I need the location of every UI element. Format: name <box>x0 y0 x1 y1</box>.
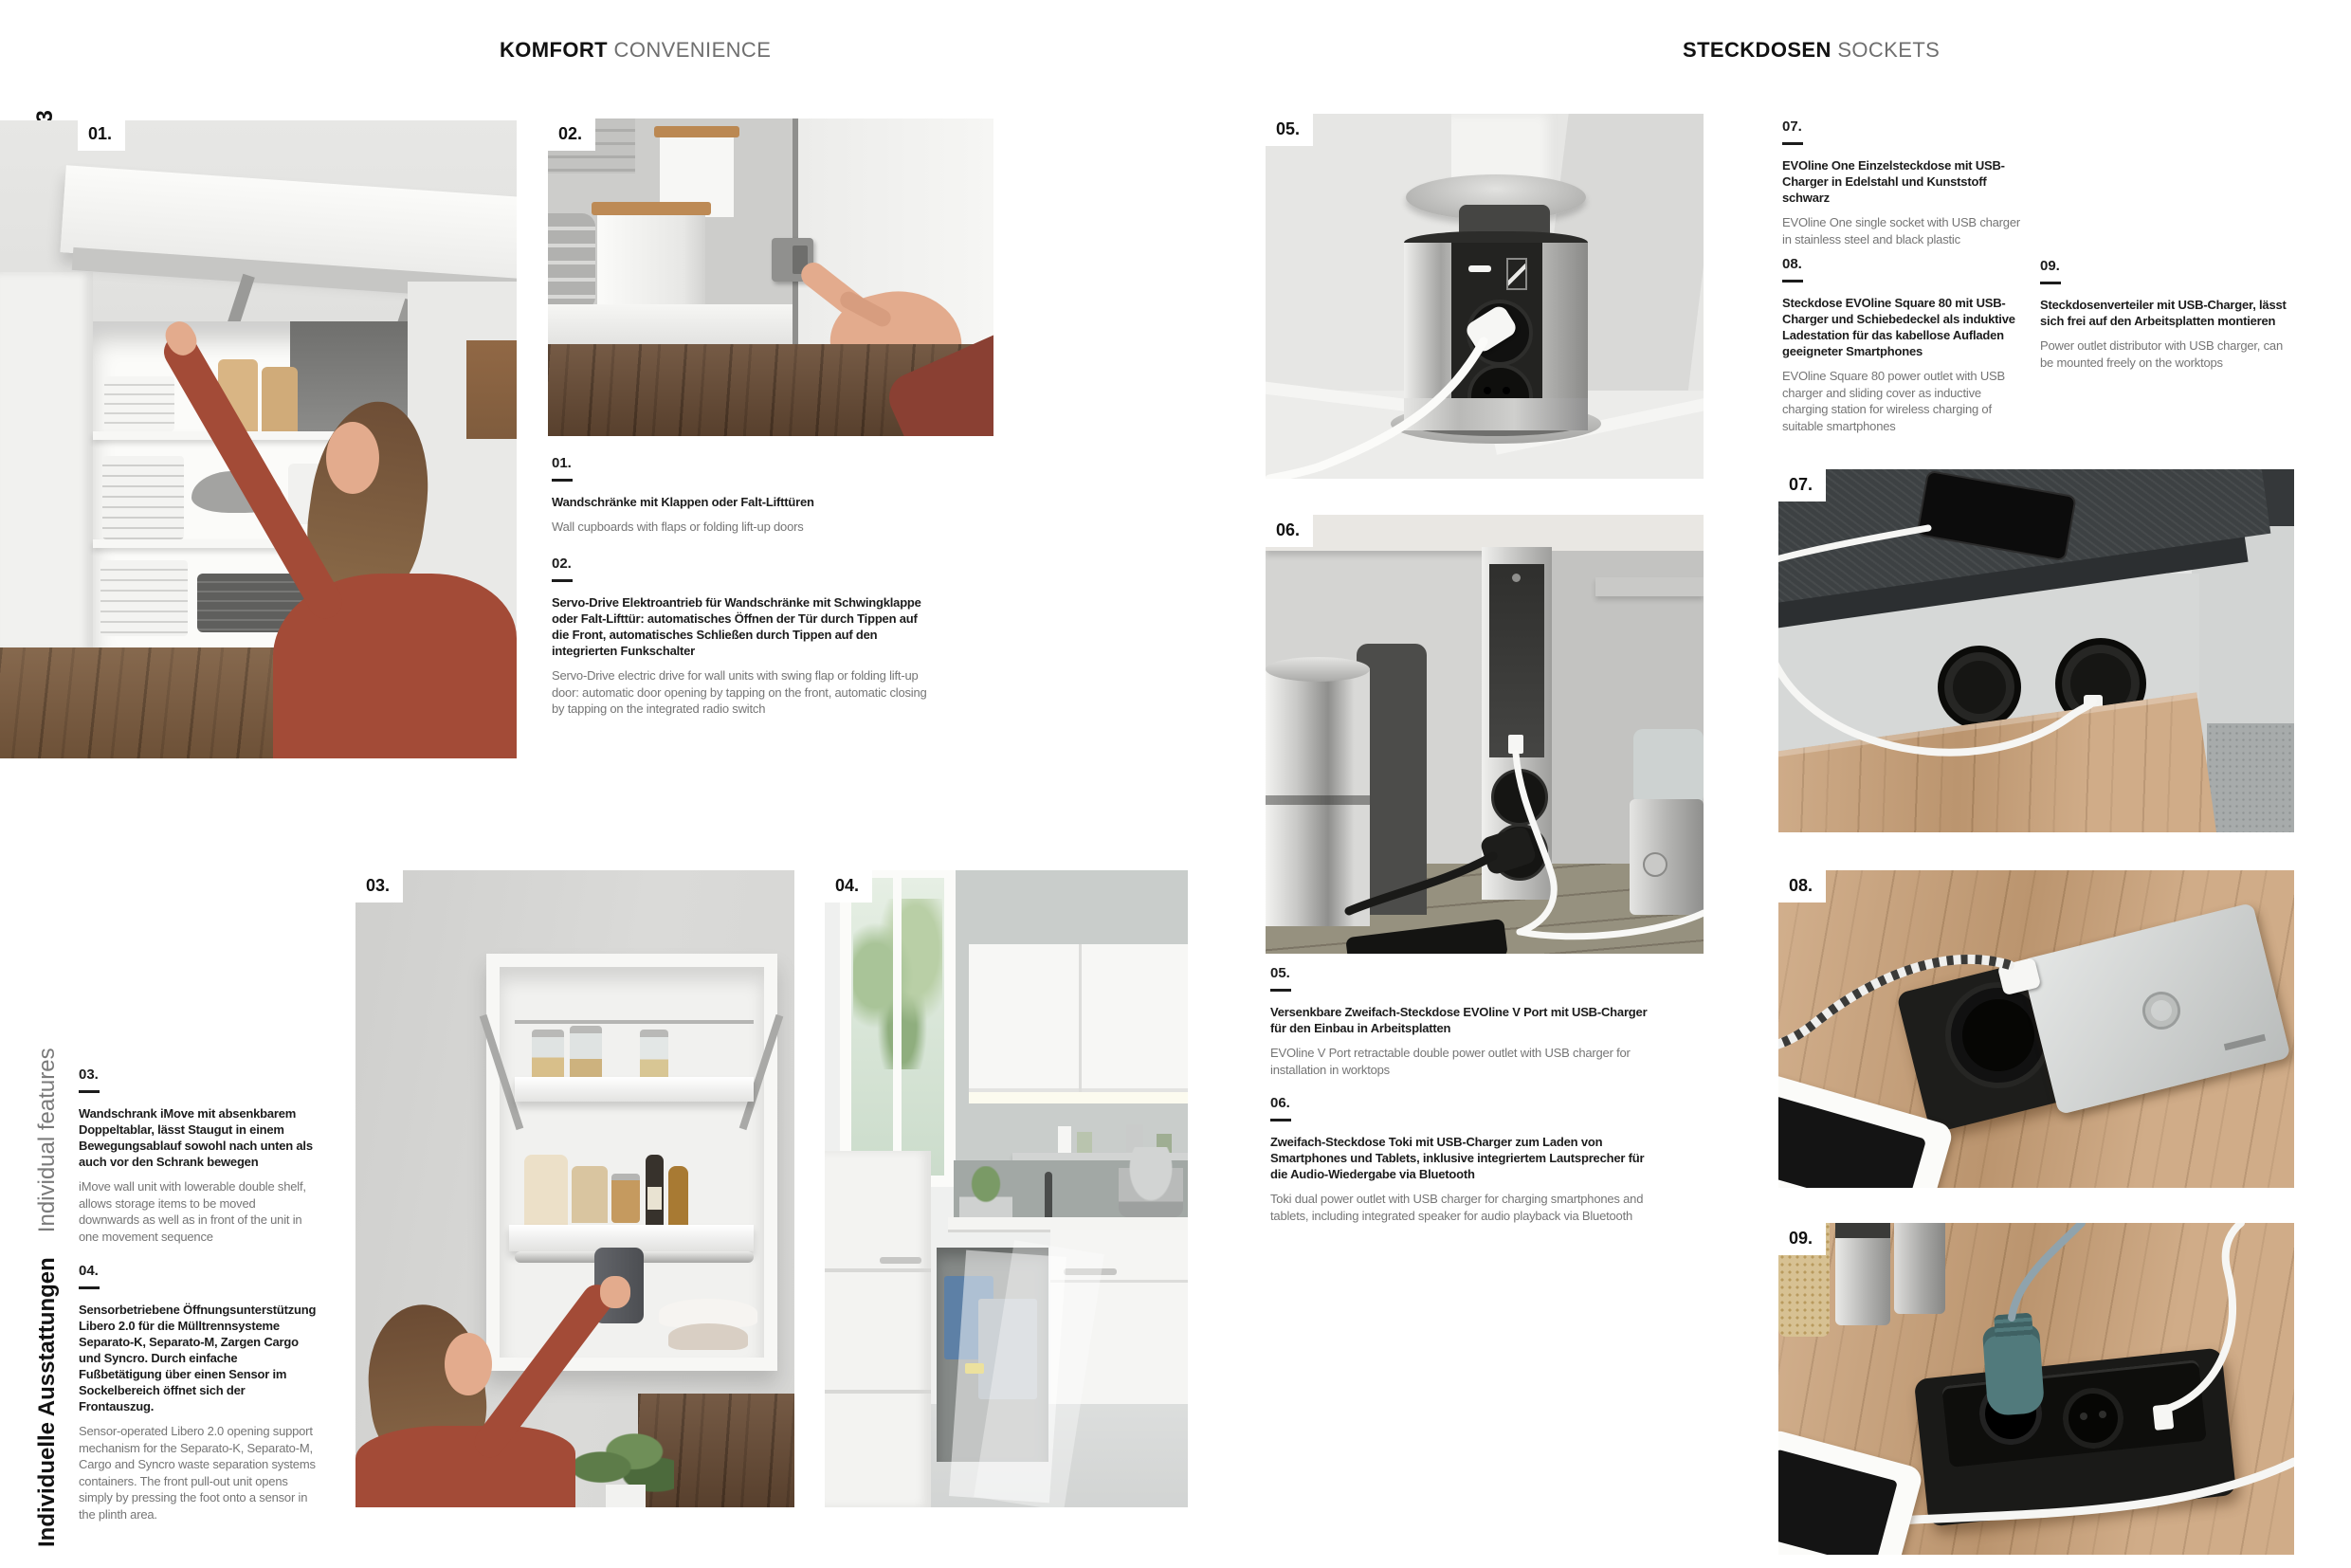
photo-06-toki-socket <box>1266 515 1704 954</box>
cables <box>1266 515 1704 954</box>
photo-07-evoline-one <box>1778 469 2294 832</box>
header-left-en: CONVENIENCE <box>614 38 772 62</box>
under-cabinet-light <box>969 1092 1188 1103</box>
wood-cabinet-top-right <box>466 340 517 439</box>
caption-text-en: Sensor-operated Libero 2.0 opening suppo… <box>79 1423 318 1522</box>
canister-lid-wood <box>592 202 711 215</box>
paper-bag <box>262 367 298 431</box>
herb-leaves <box>570 1430 674 1492</box>
caption-text-en: EVOline Square 80 power outlet with USB … <box>1782 368 2024 434</box>
plate-stack-mid <box>102 456 184 539</box>
caption-rule <box>1270 989 1291 992</box>
caption-02: 02. Servo-Drive Elektroantrieb für Wands… <box>552 556 931 718</box>
header-right-de: STECKDOSEN <box>1683 38 1832 62</box>
white-cable <box>1266 114 1704 479</box>
upper-tray-rail <box>515 1020 754 1024</box>
figure-label-05: 05. <box>1266 114 1313 146</box>
caption-number: 08. <box>1782 256 2024 272</box>
caption-text-en: Toki dual power outlet with USB charger … <box>1270 1191 1649 1224</box>
plate-stack-bottom <box>100 560 188 636</box>
bean-jar <box>611 1174 640 1223</box>
caption-text-de: Steckdosenverteiler mit USB-Charger, läs… <box>2040 297 2287 329</box>
plate-stack-top <box>104 376 174 431</box>
bowl-stack-left <box>548 213 595 310</box>
section-header-right: STECKDOSEN SOCKETS <box>1683 38 1940 63</box>
box-behind-lid <box>654 126 739 137</box>
figure-label-06: 06. <box>1266 515 1313 547</box>
sidebar-label-de: Individuelle Ausstattungen <box>34 1257 60 1547</box>
woman-torso <box>355 1426 575 1507</box>
sidebar-section-label: Individuelle AusstattungenIndividual fea… <box>34 1048 61 1547</box>
caption-rule <box>1782 280 1803 283</box>
wall-unit-gap <box>1079 944 1082 1092</box>
section-header-left: KOMFORT CONVENIENCE <box>500 38 771 63</box>
storage-jar <box>640 1030 668 1081</box>
caption-text-de: Steckdose EVOline Square 80 mit USB-Char… <box>1782 295 2024 359</box>
caption-rule <box>79 1286 100 1289</box>
flour-bag <box>524 1155 568 1225</box>
caption-number: 04. <box>79 1263 318 1279</box>
stand-mixer <box>1119 1147 1183 1217</box>
caption-rule <box>1270 1119 1291 1121</box>
paper-bag <box>572 1166 608 1223</box>
header-right-en: SOCKETS <box>1837 38 1940 62</box>
tall-unit-handle <box>880 1257 921 1264</box>
caption-number: 05. <box>1270 965 1649 981</box>
caption-rule <box>1782 142 1803 145</box>
caption-text-en: Power outlet distributor with USB charge… <box>2040 337 2287 371</box>
caption-text-de: Servo-Drive Elektroantrieb für Wandschrä… <box>552 594 931 659</box>
caption-number: 03. <box>79 1067 318 1083</box>
bowl-stack <box>668 1323 748 1350</box>
caption-rule <box>2040 282 2061 284</box>
photo-04-libero-waste-pullout <box>825 870 1188 1507</box>
caption-rule <box>552 479 573 482</box>
caption-rule <box>79 1090 100 1093</box>
upper-tray <box>515 1077 754 1102</box>
caption-rule <box>552 579 573 582</box>
caption-06: 06. Zweifach-Steckdose Toki mit USB-Char… <box>1270 1095 1649 1224</box>
figure-label-07: 07. <box>1778 469 1826 501</box>
tall-unit-gap <box>825 1268 931 1272</box>
worktop <box>948 1217 1188 1230</box>
caption-04: 04. Sensorbetriebene Öffnungsunterstützu… <box>79 1263 318 1522</box>
caption-text-en: EVOline One single socket with USB charg… <box>1782 214 2024 247</box>
figure-label-01: 01. <box>78 119 125 151</box>
figure-label-02: 02. <box>548 119 595 151</box>
caption-07: 07. EVOline One Einzelsteckdose mit USB-… <box>1782 119 2024 247</box>
photo-05-evoline-vport <box>1266 114 1704 479</box>
faucet <box>1045 1172 1052 1217</box>
storage-jar <box>570 1026 602 1081</box>
woman-face <box>445 1333 492 1395</box>
storage-jar <box>532 1030 564 1081</box>
left-tall-cabinet <box>0 272 93 651</box>
caption-01: 01. Wandschränke mit Klappen oder Falt-L… <box>552 455 870 536</box>
caption-number: 01. <box>552 455 870 471</box>
caption-text-en: EVOline V Port retractable double power … <box>1270 1045 1649 1078</box>
vase <box>1077 1132 1092 1153</box>
caption-text-de: Wandschränke mit Klappen oder Falt-Liftt… <box>552 494 870 510</box>
caption-05: 05. Versenkbare Zweifach-Steckdose EVOli… <box>1270 965 1649 1078</box>
tall-unit <box>825 1151 931 1507</box>
caption-text-de: Zweifach-Steckdose Toki mit USB-Charger … <box>1270 1134 1649 1182</box>
photo-02-servo-drive-switch <box>548 119 993 436</box>
tall-unit-gap <box>825 1390 931 1394</box>
caption-03: 03. Wandschrank iMove mit absenkbarem Do… <box>79 1067 318 1245</box>
caption-text-en: Servo-Drive electric drive for wall unit… <box>552 667 931 718</box>
caption-text-en: iMove wall unit with lowerable double sh… <box>79 1178 318 1245</box>
caption-number: 07. <box>1782 119 2024 135</box>
photo-01-wall-cupboard-flap <box>0 120 517 758</box>
caption-text-de: Versenkbare Zweifach-Steckdose EVOline V… <box>1270 1004 1649 1036</box>
plant-pot <box>606 1485 646 1507</box>
catalog-spread: 172 • 173 Individuelle AusstattungenIndi… <box>0 0 2351 1568</box>
photo-08-evoline-square80 <box>1778 870 2294 1188</box>
white-cables <box>1778 469 2294 832</box>
photo-03-imove-wall-unit <box>355 870 794 1507</box>
header-left-de: KOMFORT <box>500 38 608 62</box>
caption-08: 08. Steckdose EVOline Square 80 mit USB-… <box>1782 256 2024 434</box>
caption-number: 09. <box>2040 258 2287 274</box>
vase <box>1058 1126 1071 1153</box>
bottle-label <box>647 1187 662 1210</box>
amber-bottle <box>668 1166 688 1225</box>
caption-number: 02. <box>552 556 931 572</box>
caption-number: 06. <box>1270 1095 1649 1111</box>
photo-09-outlet-distributor <box>1778 1223 2294 1555</box>
caption-text-de: EVOline One Einzelsteckdose mit USB-Char… <box>1782 157 2024 206</box>
window-mullion <box>893 878 902 1176</box>
woman-hand <box>600 1276 630 1308</box>
figure-label-04: 04. <box>825 870 872 903</box>
caption-text-en: Wall cupboards with flaps or folding lif… <box>552 519 870 536</box>
interior-shelf-floor <box>548 304 832 344</box>
caption-text-de: Wandschrank iMove mit absenkbarem Doppel… <box>79 1105 318 1170</box>
herb-pot <box>959 1166 1012 1217</box>
figure-label-09: 09. <box>1778 1223 1826 1255</box>
figure-label-08: 08. <box>1778 870 1826 903</box>
figure-label-03: 03. <box>355 870 403 903</box>
sidebar-label-en: Individual features <box>34 1048 60 1232</box>
woman-face <box>326 422 379 494</box>
caption-text-de: Sensorbetriebene Öffnungsunterstützung L… <box>79 1302 318 1414</box>
caption-09: 09. Steckdosenverteiler mit USB-Charger,… <box>2040 258 2287 371</box>
